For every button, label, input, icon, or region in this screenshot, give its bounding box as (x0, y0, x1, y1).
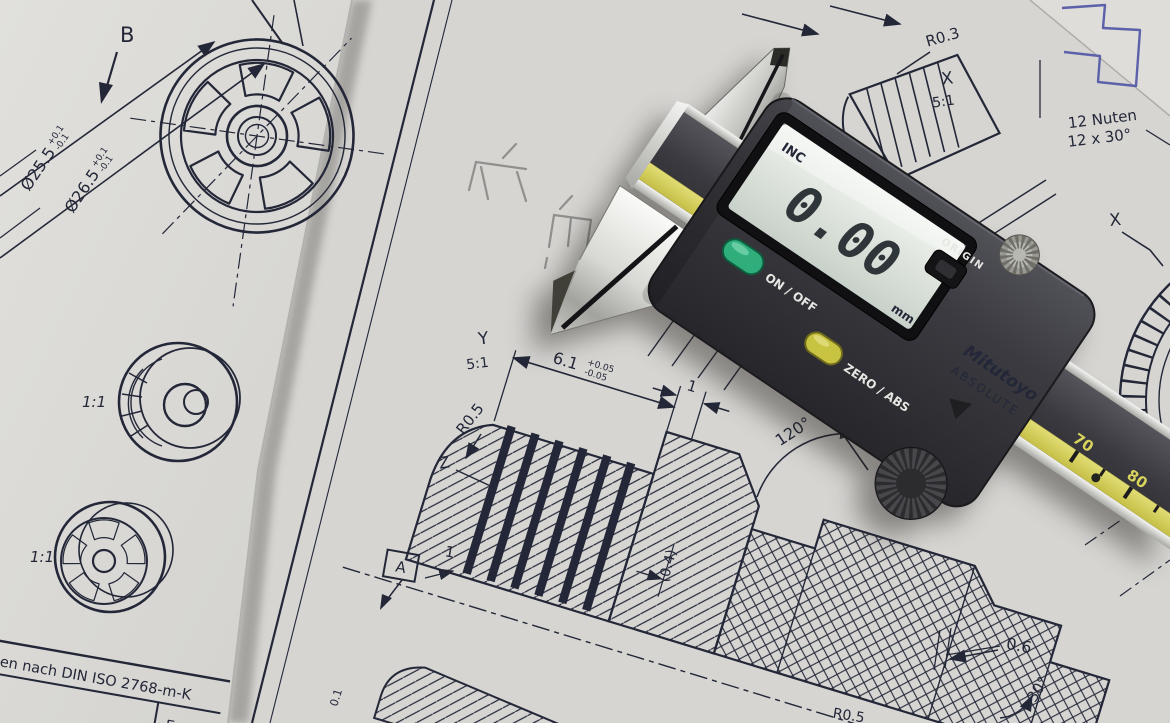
photo-caliper-on-drawings: Ø25.5 +0.1 -0.1 Ø26.5 +0.1 -0.1 B (0, 0, 1170, 723)
digital-caliper: 70 80 90 INC 0.00 (0, 0, 1170, 723)
